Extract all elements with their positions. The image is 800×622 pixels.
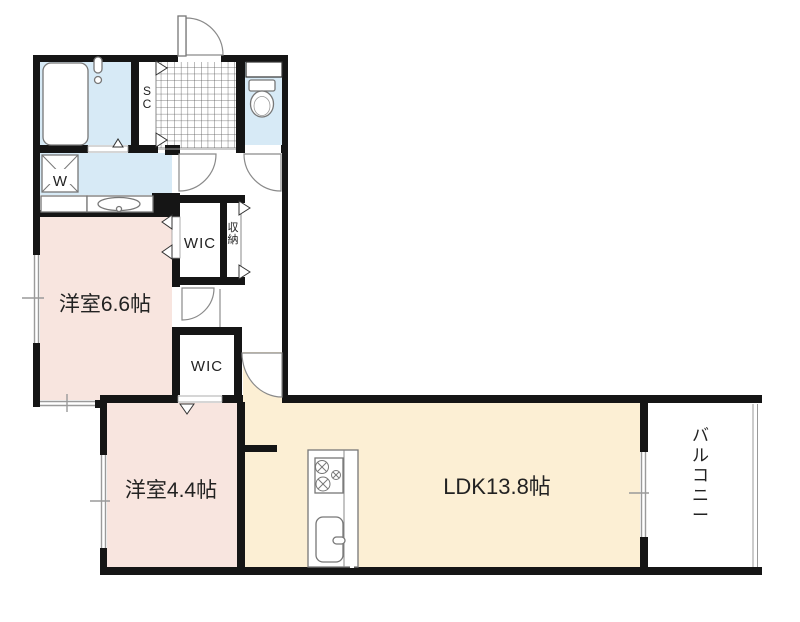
plan-segment: [100, 548, 107, 567]
kitchen-tap: [333, 537, 345, 544]
plan-segment: [282, 55, 288, 403]
plan-segment: [41, 196, 87, 212]
toilet-window: [246, 62, 282, 77]
bedroom1-label: 洋室6.6帖: [59, 293, 151, 316]
plan-segment: [350, 548, 354, 568]
floor-plan-page: 洋室6.6帖 洋室4.4帖 LDK13.8帖 バルコニー WIC WIC 収納 …: [0, 0, 800, 617]
plan-segment: [100, 403, 107, 455]
plan-segment: [221, 55, 288, 62]
storage-arrow-1: [239, 201, 250, 215]
wic2-fold-door: [178, 396, 222, 402]
storage-arrow-2: [239, 265, 250, 279]
washer-label: W: [53, 173, 68, 190]
wic1-fold-door: [172, 217, 180, 258]
plan-segment: [237, 402, 245, 567]
bedroom1-door-swing: [182, 288, 214, 320]
entrance-door-swing: [186, 18, 223, 55]
bedroom2-label: 洋室4.4帖: [125, 479, 217, 502]
plan-segment: [281, 145, 288, 153]
plan-segment: [640, 537, 648, 568]
ldk-label: LDK13.8帖: [443, 474, 551, 499]
balcony-railing: [753, 404, 758, 567]
plan-segment: [43, 63, 88, 145]
plan-segment: [172, 327, 242, 335]
plan-segment: [172, 335, 180, 395]
genkan-tile-pattern: [156, 58, 236, 148]
plan-segment: [220, 203, 227, 277]
plan-segment: [172, 277, 245, 285]
bath-drain: [95, 77, 102, 84]
kitchen-counter: [308, 450, 358, 568]
plan-segment: [640, 403, 648, 452]
plan-segment: [234, 335, 242, 395]
plan-segment: [33, 145, 88, 153]
plan-segment: [222, 395, 243, 403]
wic2-label: WIC: [191, 358, 223, 375]
plan-segment: [245, 445, 277, 452]
plan-segment: [288, 395, 762, 403]
plan-segment: [33, 55, 40, 255]
toilet-tank: [249, 80, 275, 91]
bath-faucet: [94, 57, 102, 73]
plan-segment: [100, 395, 178, 403]
plan-segment: [165, 145, 180, 155]
plan-segment: [172, 195, 245, 203]
plan-segment: [33, 343, 40, 407]
wic1-label: WIC: [184, 235, 216, 252]
plan-segment: [117, 207, 122, 212]
toilet-door-swing: [244, 154, 281, 191]
balcony-label: バルコニー: [692, 426, 710, 525]
plan-segment: [236, 145, 245, 153]
toilet-fixture: [249, 80, 275, 117]
vanity-unit: [41, 196, 153, 212]
floor-plan-drawing: 洋室6.6帖 洋室4.4帖 LDK13.8帖 バルコニー WIC WIC 収納 …: [0, 0, 800, 617]
plan-segment: [236, 58, 245, 146]
plan-segment: [131, 58, 139, 146]
plan-segment: [100, 567, 762, 575]
entrance-door-leaf: [178, 16, 186, 56]
shoe-closet-label: SC: [143, 84, 152, 111]
washroom-door-swing: [179, 154, 216, 191]
plan-segment: [128, 145, 158, 153]
bedroom2-west-window: [90, 455, 110, 548]
storage-label: 収納: [228, 221, 239, 246]
